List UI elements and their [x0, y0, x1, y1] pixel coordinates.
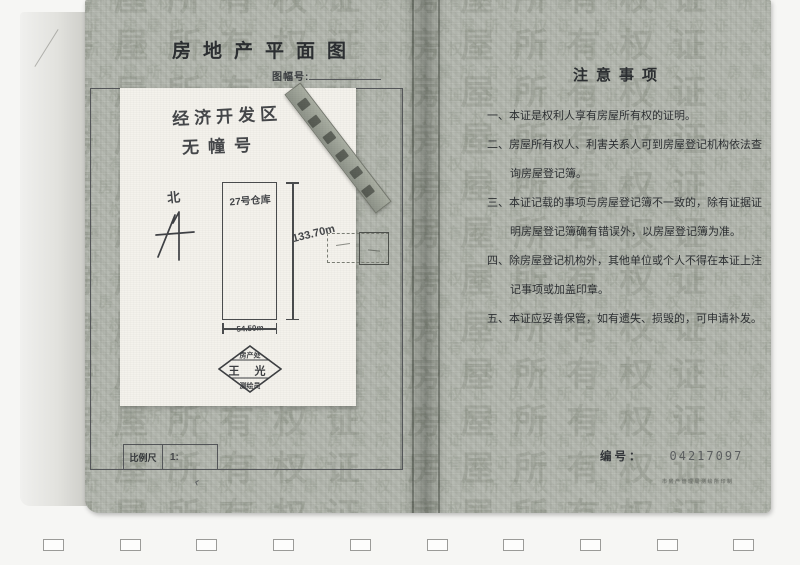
- note-item-4: 四、除房屋登记机构外，其他单位或个人不得在本证上注记事项或加盖印章。: [487, 247, 769, 305]
- serial-number-row: 编号： 04217097: [600, 448, 743, 464]
- film-mark: [503, 539, 524, 551]
- underlying-page-edge: [20, 12, 87, 506]
- stamp-office-text: 房产处: [240, 351, 262, 360]
- notes-list: 一、本证是权利人享有房屋所有权的证明。 二、房屋所有权人、利害关系人可到房屋登记…: [487, 102, 769, 334]
- annex-plot-outline: [327, 233, 389, 263]
- stamp-role-text: 测绘员: [240, 381, 261, 390]
- map-sheet-number-blank-line: [309, 79, 381, 80]
- serial-number-value: 04217097: [670, 449, 744, 463]
- film-mark: [733, 539, 754, 551]
- film-mark: [120, 539, 141, 551]
- scale-value: 1:: [163, 445, 217, 469]
- map-sheet-number-label: 图幅号:: [272, 72, 309, 83]
- note-item-2: 二、房屋所有权人、利害关系人可到房屋登记机构依法查询房屋登记簿。: [487, 131, 769, 189]
- certificate-booklet: 房屋所有权证 房屋所有权证 房屋所有权证 房屋所有权证 房屋所有权证 房屋所有权…: [85, 0, 771, 513]
- plan-page-title: 房地产平面图: [140, 36, 390, 63]
- scale-label: 比例尺: [124, 445, 163, 469]
- north-arrow-icon: [153, 202, 197, 264]
- handwritten-check-mark: ‹: [193, 474, 202, 490]
- note-item-3: 三、本证记载的事项与房屋登记簿不一致的，除有证据证明房屋登记簿确有错误外，以房屋…: [487, 189, 769, 247]
- handwritten-location-line1: 经济开发区: [171, 99, 282, 130]
- film-mark: [427, 539, 448, 551]
- film-mark: [43, 539, 64, 551]
- booklet-spine: [403, 0, 447, 513]
- map-sheet-number-row: 图幅号:: [272, 68, 381, 83]
- height-dimension-line: [286, 182, 299, 320]
- film-mark: [273, 539, 294, 551]
- film-mark: [580, 539, 601, 551]
- film-mark: [657, 539, 678, 551]
- surveyor-stamp: 房产处 王 光 测绘员: [218, 345, 282, 393]
- spine-fold-line: [412, 0, 414, 513]
- note-item-1: 一、本证是权利人享有房屋所有权的证明。: [487, 102, 769, 131]
- film-mark: [350, 539, 371, 551]
- notes-page-title: 注意事项: [529, 64, 709, 85]
- spine-fold-line: [438, 0, 440, 513]
- film-mark: [196, 539, 217, 551]
- stamp-name-text: 王 光: [228, 364, 271, 378]
- serial-number-label: 编号：: [600, 448, 644, 464]
- note-item-5: 五、本证应妥善保管，如有遗失、损毁的，可申请补发。: [487, 305, 769, 334]
- handwritten-location-line2: 无幢号: [182, 131, 261, 159]
- scale-table: 比例尺 1:: [123, 444, 218, 470]
- warehouse-label: 27号仓库: [226, 190, 275, 208]
- printer-fine-print: 市房产管理局测绘所印制: [662, 478, 734, 485]
- warehouse-outline: 27号仓库: [222, 182, 277, 320]
